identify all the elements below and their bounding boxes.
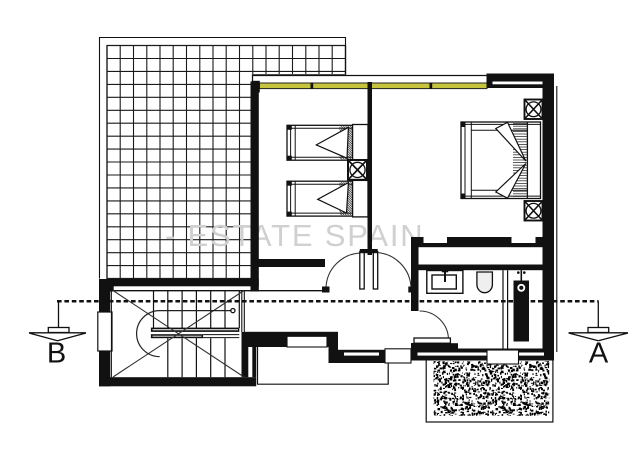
svg-text:B: B: [47, 338, 66, 370]
svg-text:A: A: [589, 338, 609, 370]
svg-text:- ESTATE SPAIN -: - ESTATE SPAIN -: [165, 218, 447, 253]
